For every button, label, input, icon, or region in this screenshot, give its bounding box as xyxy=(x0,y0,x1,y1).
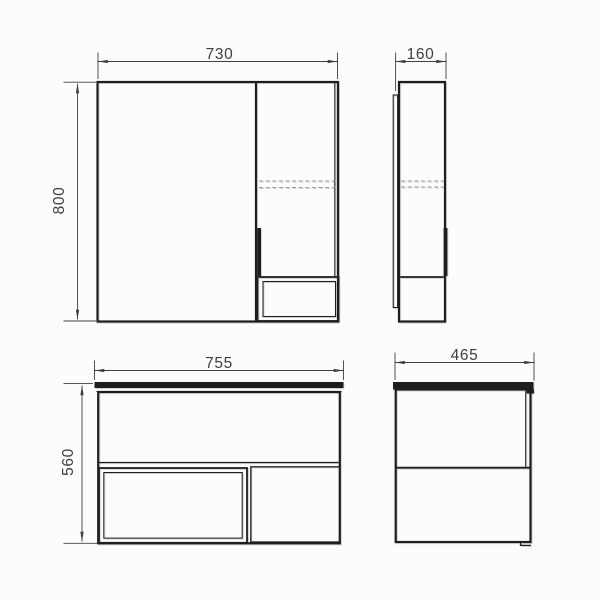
side-body-outline xyxy=(399,82,445,322)
dimension-label-mirror-width: 730 xyxy=(206,46,234,63)
door-handle xyxy=(257,228,261,276)
height-dimension-800: 800 xyxy=(51,82,96,321)
left-drawer-panel xyxy=(99,468,247,543)
open-shelf-outer xyxy=(258,277,339,321)
mirror-door-panel xyxy=(393,95,397,308)
dimension-label-mirror-height: 800 xyxy=(51,187,68,215)
vanity-front-view: 755 560 xyxy=(60,355,344,543)
vanity-side-view: 465 xyxy=(393,347,534,545)
left-drawer-inset xyxy=(104,473,242,539)
mirror-cabinet-front-view: 730 800 xyxy=(51,46,339,322)
dimension-label-vanity-width: 755 xyxy=(205,355,233,372)
technical-drawing: 730 800 160 xyxy=(0,0,600,600)
open-shelf-inner xyxy=(263,282,336,317)
countertop-profile xyxy=(393,382,534,390)
dimension-label-mirror-depth: 160 xyxy=(407,46,435,63)
dimension-label-vanity-depth: 465 xyxy=(451,347,479,364)
right-door-panel xyxy=(251,467,340,542)
width-dimension-755: 755 xyxy=(95,355,344,380)
dimension-label-vanity-height: 560 xyxy=(60,448,77,476)
depth-dimension-465: 465 xyxy=(395,347,534,381)
height-dimension-560: 560 xyxy=(60,384,97,544)
door-handle-profile xyxy=(444,228,448,276)
width-dimension-730: 730 xyxy=(98,46,338,79)
countertop-bar xyxy=(95,382,344,388)
mirror-cabinet-outline xyxy=(98,82,339,322)
mirror-cabinet-side-view: 160 xyxy=(393,46,447,322)
drawing-canvas: 730 800 160 xyxy=(0,0,600,600)
bottom-step-detail xyxy=(521,543,532,545)
depth-dimension-160: 160 xyxy=(396,46,446,91)
side-body-outline xyxy=(396,390,531,543)
